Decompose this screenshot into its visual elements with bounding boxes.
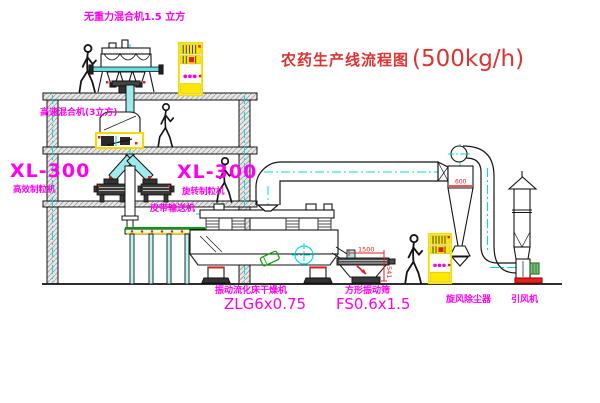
- control-cabinet-lower: [429, 234, 451, 283]
- feed-pipe-upper: [126, 85, 134, 113]
- label-gravity-mixer: 无重力混合机1.5 立方: [84, 13, 185, 23]
- sieve-height-dim: 541: [385, 266, 393, 278]
- title-chinese: 农药生产线流程图: [281, 49, 409, 70]
- label-fan: 引风机: [511, 296, 538, 305]
- label-high-speed-mixer: 高速混合机(3立方): [40, 109, 118, 118]
- label-granulator-right-name: 旋转制粒机: [182, 188, 225, 197]
- vibrating-sieve: 1500 541: [337, 246, 395, 284]
- exhaust-stack: [509, 171, 536, 247]
- downcomer-duct: [463, 146, 516, 273]
- fluid-bed-dryer: [190, 204, 355, 283]
- drop-pipe: [122, 166, 138, 228]
- drawing-title: 农药生产线流程图 (500kg/h): [281, 46, 524, 72]
- induced-draft-fan: [514, 247, 542, 283]
- label-cyclone: 旋风除尘器: [446, 296, 491, 305]
- person-ground: [405, 235, 422, 283]
- label-granulator-left-name: 高效制粒机: [13, 186, 56, 195]
- title-capacity: (500kg/h): [412, 46, 524, 72]
- dryer-pedestal-right: [304, 267, 332, 283]
- label-granulator-right-model: XL-300: [177, 163, 257, 182]
- control-cabinet-upper: [179, 43, 202, 95]
- person-second-floor: [158, 104, 173, 147]
- label-belt-conveyor: 皮带输送机: [150, 205, 195, 214]
- label-granulator-left-model: XL-300: [10, 162, 90, 181]
- cyclone-diameter-dim: 600: [455, 179, 467, 186]
- sieve-length-dim: 1500: [358, 246, 375, 254]
- dryer-pedestal-left: [202, 267, 230, 283]
- exhaust-duct: [256, 162, 448, 211]
- cad-drawing-canvas: 600: [0, 0, 600, 403]
- label-dryer-model: ZLG6x0.75: [224, 297, 306, 312]
- label-sieve-model: FS0.6x1.5: [336, 297, 410, 312]
- granulator-right-unit: [138, 184, 174, 202]
